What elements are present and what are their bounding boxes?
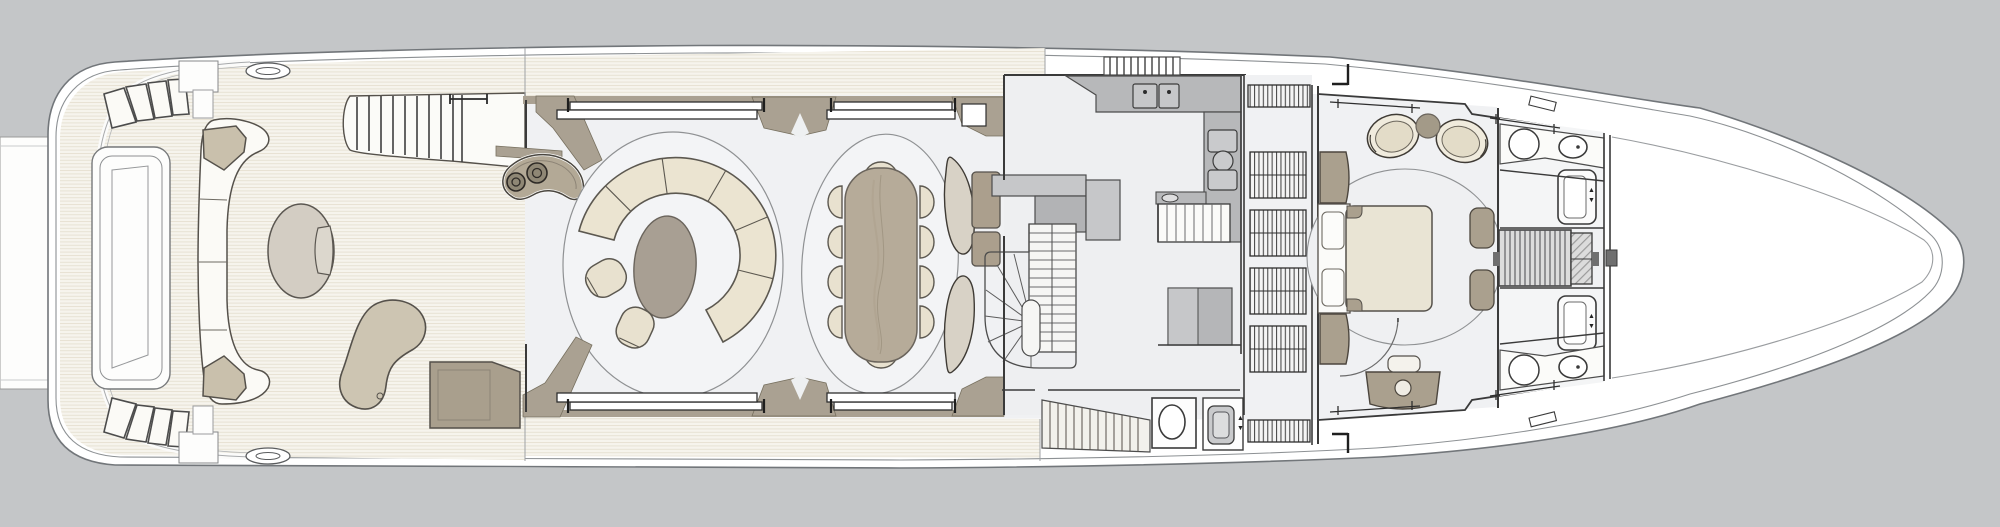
svg-text:▲: ▲ [1237,415,1244,422]
svg-text:▼: ▼ [1237,425,1244,432]
svg-text:▼: ▼ [1588,197,1595,204]
svg-text:▼: ▼ [1588,323,1595,330]
svg-text:▲: ▲ [1588,313,1595,320]
svg-text:▲: ▲ [1588,187,1595,194]
